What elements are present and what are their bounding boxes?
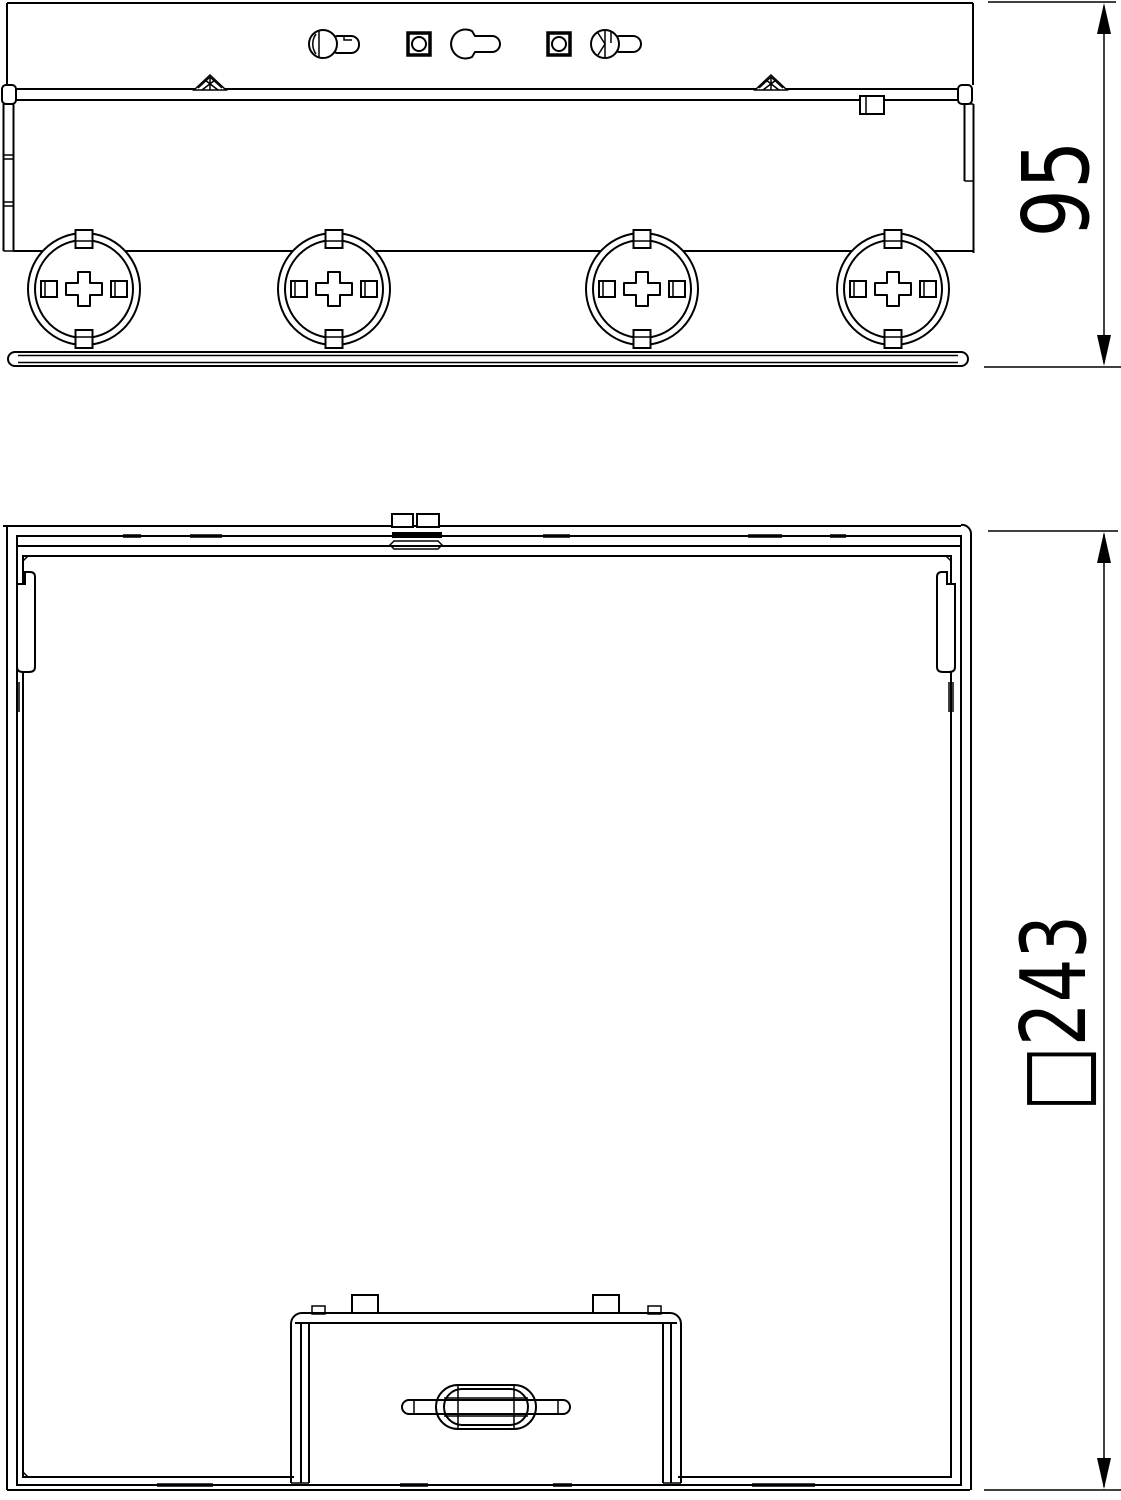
cover-plate (291, 1295, 681, 1483)
knockout-3 (586, 230, 698, 348)
frame-latch-left (17, 572, 35, 712)
dimension-95: 95 (984, 2, 1121, 367)
clip-shadow-bar (392, 532, 442, 538)
technical-drawing-page: 95 (0, 0, 1121, 1500)
cover-plate-tab-left (352, 1295, 378, 1313)
latch-block-right (860, 96, 884, 114)
side-elevation-view: 95 (2, 2, 1121, 367)
plan-view: □243 (3, 514, 1121, 1490)
knockout-4 (837, 230, 949, 348)
arrowhead-down-icon (1097, 1458, 1111, 1489)
dimension-243: □243 (984, 531, 1121, 1490)
frame-top-clips (390, 514, 442, 549)
screw-keyhole-right (591, 30, 641, 58)
arrowhead-up-icon (1097, 3, 1111, 34)
flange (2, 85, 972, 104)
arrowhead-down-icon (1097, 335, 1111, 366)
keyhole-slot-center (451, 29, 500, 58)
bottom-rail (8, 352, 968, 366)
arrowhead-up-icon (1097, 532, 1111, 563)
dimension-243-label: □243 (1002, 915, 1107, 1111)
side-bracket-left (4, 104, 14, 251)
side-bracket-right (965, 104, 974, 253)
knockout-1 (28, 230, 140, 348)
knockout-2 (278, 230, 390, 348)
square-hole-right (548, 33, 570, 55)
frame-latch-right (937, 572, 955, 712)
square-hole-left (408, 33, 430, 55)
levelling-clip-right (755, 75, 787, 90)
mounting-slot-row (309, 29, 641, 58)
levelling-clip-left (194, 75, 226, 90)
cover-plate-face (294, 1324, 678, 1479)
cover-plate-tab-right (593, 1295, 619, 1313)
floor-box-drawing: 95 (0, 0, 1121, 1500)
screw-keyhole-left (309, 30, 359, 58)
dimension-95-label: 95 (1003, 141, 1110, 238)
knockouts (28, 230, 949, 348)
